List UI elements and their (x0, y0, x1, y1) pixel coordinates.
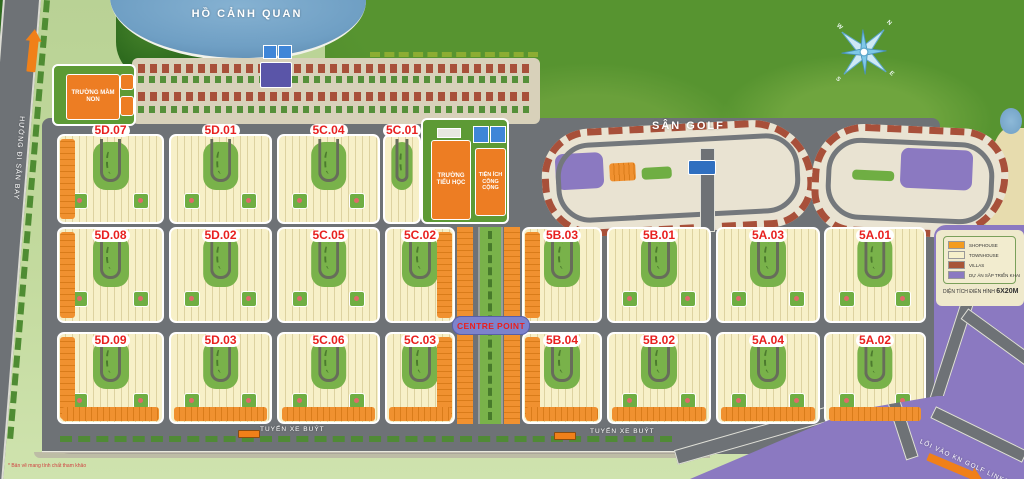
block-5b-02: 5B.02 (607, 332, 711, 424)
pool (473, 126, 489, 143)
lakeside-villa-strip (132, 58, 540, 124)
mini-park (680, 291, 696, 307)
mini-park (895, 291, 911, 307)
airport-direction-arrow (26, 40, 38, 73)
block-5c-04: 5C.04 (277, 134, 380, 224)
block-5b-04: 5B.04 (522, 332, 602, 424)
mini-park (789, 291, 805, 307)
mini-park (292, 193, 308, 209)
zone-road (961, 308, 1024, 370)
shophouse-strip (174, 407, 267, 421)
block-label: 5B.02 (640, 334, 678, 347)
block-label: 5A.02 (856, 334, 894, 347)
disclaimer-note: * Bản vẽ mang tính chất tham khảo (8, 463, 86, 469)
kindergarten-annex (120, 74, 134, 90)
block-park (402, 340, 438, 389)
block-park (641, 340, 677, 389)
mini-park (731, 291, 747, 307)
school-lot: TRƯỜNG TIỂU HỌC TIỆN ÍCH CÔNG CỘNG (421, 118, 509, 224)
villa-loop-west (539, 117, 816, 239)
shophouse-swatch (948, 241, 965, 249)
future-project-plot (900, 148, 974, 191)
pool (278, 45, 292, 59)
block-park (391, 142, 412, 190)
block-label: 5C.03 (401, 334, 439, 347)
block-label: 5B.04 (543, 334, 581, 347)
master-plan-map: TRƯỜNG MẦM NON TRƯỜNG TIỂU HỌC TIỆN ÍCH … (0, 0, 1024, 479)
block-label: 5D.09 (91, 334, 129, 347)
block-5d-03: 5D.03 (169, 332, 272, 424)
block-5a-02: 5A.02 (824, 332, 926, 424)
block-label: 5C.05 (309, 229, 347, 242)
kindergarten-lot: TRƯỜNG MẦM NON (52, 64, 136, 126)
shophouse-strip (612, 407, 706, 421)
mini-park (133, 193, 149, 209)
tree-line (60, 436, 672, 442)
block-5d-01: 5D.01 (169, 134, 272, 224)
golf-pond (1000, 108, 1022, 134)
block-label: 5C.06 (309, 334, 347, 347)
shophouse-strip (437, 232, 452, 319)
legend-item-villas: VILLAS (948, 261, 1011, 269)
pool (490, 126, 506, 143)
block-park (203, 142, 239, 190)
centre-point-sign: CENTRE POINT (452, 316, 530, 335)
zone-road (886, 396, 918, 461)
block-park (402, 235, 438, 287)
bus-stop (554, 432, 576, 440)
green-plot (852, 169, 894, 181)
shophouse-strip (282, 407, 375, 421)
mini-park (184, 193, 200, 209)
tree-row (138, 106, 534, 113)
mini-park (349, 291, 365, 307)
block-5b-01: 5B.01 (607, 227, 711, 323)
block-park (311, 235, 347, 287)
mini-park (133, 291, 149, 307)
block-park (857, 235, 892, 287)
block-label: 5C.04 (309, 124, 347, 137)
villa-row (138, 64, 534, 73)
block-label: 5D.02 (201, 229, 239, 242)
villa-loop-east (810, 122, 1011, 240)
shophouse-strip (721, 407, 815, 421)
entrance-sign (688, 160, 716, 175)
shophouse-strip (389, 407, 451, 421)
block-park (93, 340, 129, 389)
block-label: 5B.03 (543, 229, 581, 242)
block-5a-03: 5A.03 (716, 227, 820, 323)
block-park (203, 340, 239, 389)
block-park (93, 235, 129, 287)
block-park (311, 340, 347, 389)
block-park (750, 235, 786, 287)
legend: SHOPHOUSE TOWNHOUSE VILLAS DỰ ÁN SẮP TRI… (936, 230, 1024, 306)
block-label: 5C.01 (383, 124, 421, 137)
block-park (641, 235, 677, 287)
kindergarten-building: TRƯỜNG MẦM NON (66, 74, 120, 120)
shophouse-plot (609, 162, 636, 181)
block-park (750, 340, 786, 389)
mini-park (622, 291, 638, 307)
legend-item-shophouse: SHOPHOUSE (948, 241, 1011, 249)
mini-park (241, 291, 257, 307)
mini-park (184, 291, 200, 307)
block-label: 5A.01 (856, 229, 894, 242)
block-label: 5A.03 (749, 229, 787, 242)
block-5c-06: 5C.06 (277, 332, 380, 424)
villas-swatch (948, 261, 965, 269)
block-5d-02: 5D.02 (169, 227, 272, 323)
shophouse-strip (62, 407, 159, 421)
block-label: 5D.08 (91, 229, 129, 242)
block-label: 5D.07 (91, 124, 129, 137)
sidewalk (34, 452, 710, 458)
townhouse-swatch (948, 251, 965, 259)
legend-item-townhouse: TOWNHOUSE (948, 251, 1011, 259)
block-park (544, 340, 580, 389)
block-5d-08: 5D.08 (57, 227, 164, 323)
block-label: 5A.04 (749, 334, 787, 347)
bus-route-label: TUYẾN XE BUÝT (260, 426, 325, 433)
block-park (93, 142, 129, 190)
legend-item-future: DỰ ÁN SẮP TRIỂN KHAI (948, 271, 1011, 279)
mini-park (349, 193, 365, 209)
green-plot (641, 166, 672, 180)
tree-line (370, 52, 538, 57)
shophouse-strip (60, 139, 75, 220)
lake-label: HỒ CẢNH QUAN (162, 8, 332, 20)
kindergarten-annex (120, 96, 134, 116)
block-label: 5D.03 (201, 334, 239, 347)
block-label: 5C.02 (401, 229, 439, 242)
future-project-swatch (948, 271, 965, 279)
block-5c-02: 5C.02 (385, 227, 455, 323)
block-5a-04: 5A.04 (716, 332, 820, 424)
shophouse-strip (525, 232, 540, 319)
legend-box: SHOPHOUSE TOWNHOUSE VILLAS DỰ ÁN SẮP TRI… (943, 236, 1016, 284)
golf-label: SÂN GOLF (652, 120, 725, 132)
block-park (544, 235, 580, 287)
block-5a-01: 5A.01 (824, 227, 926, 323)
legend-caption: DIỆN TÍCH ĐIỂN HÌNH 6X20M (943, 288, 1018, 295)
shophouse-strip (526, 407, 597, 421)
block-park (311, 142, 347, 190)
mini-park (241, 193, 257, 209)
block-park (203, 235, 239, 287)
block-5c-05: 5C.05 (277, 227, 380, 323)
bus-route-label: TUYẾN XE BUÝT (590, 428, 655, 435)
clubhouse-building (260, 62, 292, 88)
shophouse-strip (829, 407, 921, 421)
block-5c-03: 5C.03 (385, 332, 455, 424)
block-5d-07: 5D.07 (57, 134, 164, 224)
airport-road (0, 0, 42, 479)
block-5d-09: 5D.09 (57, 332, 164, 424)
mini-park (839, 291, 855, 307)
block-5b-03: 5B.03 (522, 227, 602, 323)
pool (263, 45, 277, 59)
block-park (857, 340, 892, 389)
block-label: 5D.01 (201, 124, 239, 137)
primary-school-building: TRƯỜNG TIỂU HỌC (431, 140, 471, 220)
school-outbuilding (437, 128, 461, 138)
block-label: 5B.01 (640, 229, 678, 242)
mini-park (292, 291, 308, 307)
public-utility-building: TIỆN ÍCH CÔNG CỘNG (475, 148, 506, 216)
shophouse-strip (60, 232, 75, 319)
block-5c-01: 5C.01 (383, 134, 421, 224)
bus-stop (238, 430, 260, 438)
villa-row (138, 92, 534, 101)
future-project-plot (555, 152, 605, 190)
tree-row (138, 76, 534, 83)
